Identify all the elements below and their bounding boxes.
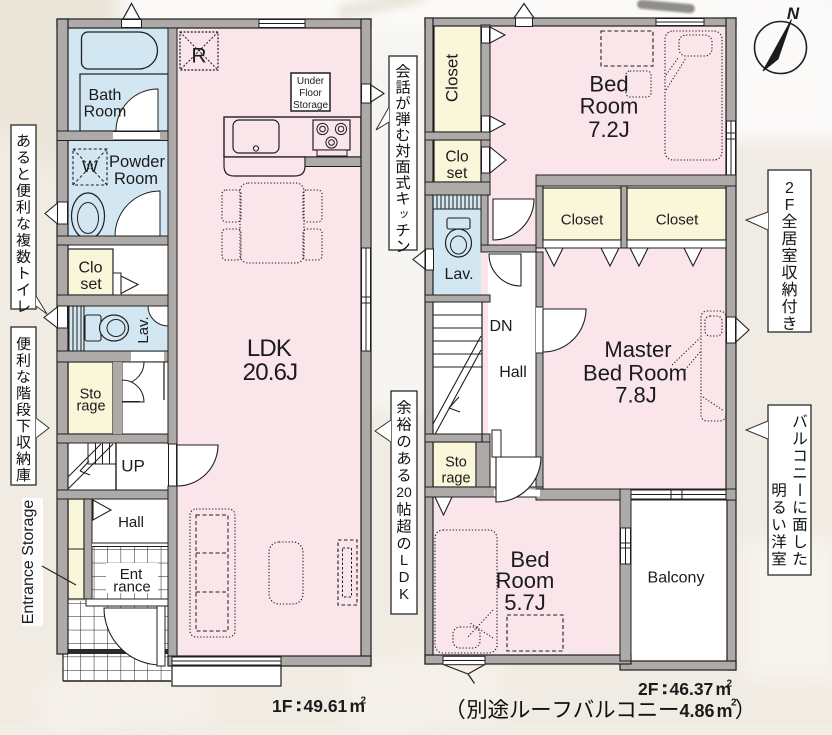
svg-text:Powder: Powder: [109, 153, 165, 171]
svg-text:N: N: [787, 4, 800, 23]
svg-text:1F: 1F: [272, 696, 293, 716]
svg-text:5.7J: 5.7J: [504, 590, 546, 615]
svg-text:D: D: [399, 569, 410, 586]
svg-text:Bath: Bath: [89, 87, 122, 104]
svg-text:20.6J: 20.6J: [243, 359, 298, 386]
svg-text:Room: Room: [580, 94, 639, 119]
svg-text:rage: rage: [76, 399, 105, 415]
svg-text:K: K: [399, 586, 409, 603]
svg-text:7.2J: 7.2J: [588, 117, 630, 142]
svg-text:Lav.: Lav.: [444, 266, 473, 283]
svg-text:Floor: Floor: [299, 88, 322, 99]
svg-text:49.61: 49.61: [304, 696, 348, 716]
svg-text:Master: Master: [604, 337, 671, 362]
svg-text:L: L: [400, 552, 408, 569]
svg-text:7.8J: 7.8J: [615, 383, 657, 408]
svg-text:Under: Under: [297, 76, 325, 87]
svg-text:46.37: 46.37: [670, 679, 714, 699]
svg-text:LDK: LDK: [247, 335, 292, 362]
svg-text:Room: Room: [84, 104, 127, 121]
svg-text:set: set: [447, 165, 468, 182]
svg-text:rage: rage: [441, 471, 470, 487]
svg-text:rance: rance: [113, 579, 151, 596]
svg-text:Entrance Storage: Entrance Storage: [20, 500, 37, 625]
svg-text:4.86: 4.86: [680, 701, 715, 721]
svg-text:set: set: [80, 276, 102, 293]
svg-text:Closet: Closet: [443, 54, 462, 102]
svg-text:Hall: Hall: [499, 364, 527, 381]
svg-text:Clo: Clo: [445, 149, 468, 166]
svg-text:Storage: Storage: [293, 100, 328, 111]
svg-text:R: R: [191, 45, 206, 68]
svg-text:Room: Room: [114, 170, 158, 188]
svg-text:Balcony: Balcony: [648, 570, 705, 587]
svg-text:2F: 2F: [638, 679, 659, 699]
svg-text:F: F: [785, 197, 795, 214]
svg-text:W: W: [82, 157, 98, 176]
svg-text:Clo: Clo: [78, 260, 102, 277]
svg-text:DN: DN: [489, 318, 512, 335]
svg-text:2: 2: [731, 698, 737, 709]
svg-text:2: 2: [785, 180, 794, 197]
svg-text:Lav.: Lav.: [135, 316, 152, 343]
svg-text:Sto: Sto: [445, 455, 467, 471]
svg-text:Closet: Closet: [656, 212, 699, 229]
svg-text:Closet: Closet: [561, 212, 604, 229]
svg-text:Hall: Hall: [118, 514, 144, 531]
svg-text:2: 2: [361, 696, 367, 707]
svg-text:UP: UP: [121, 457, 145, 476]
svg-text:2: 2: [727, 679, 733, 690]
svg-text:20: 20: [396, 484, 412, 500]
